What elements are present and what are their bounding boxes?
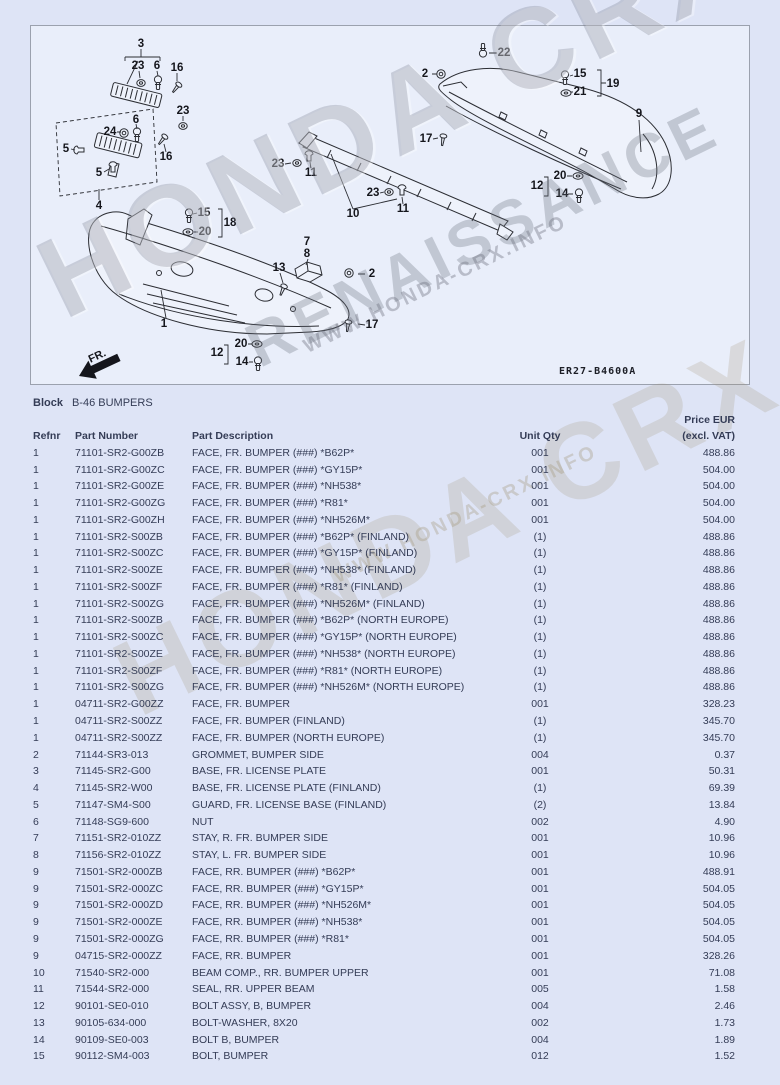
cell-part-description: FACE, FR. BUMPER (###) *NH538* (NORTH EU… [192,646,480,663]
diagram-callout-3: 3 [138,38,144,50]
cell-part-number: 71101-SR2-S00ZF [75,663,192,680]
diagram-callout-22: 22 [498,47,511,59]
cell-refnr: 1 [33,646,75,663]
cell-part-description: FACE, RR. BUMPER [192,948,480,965]
cell-price: 13.84 [600,797,735,814]
table-row: 5 71147-SM4-S00 GUARD, FR. LICENSE BASE … [0,797,780,814]
table-row: 1 04711-SR2-G00ZZ FACE, FR. BUMPER 001 3… [0,696,780,713]
cell-part-description: FACE, FR. BUMPER (###) *B62P* (FINLAND) [192,529,480,546]
cell-part-number: 71501-SR2-000ZC [75,881,192,898]
table-row: 12 90101-SE0-010 BOLT ASSY, B, BUMPER 00… [0,998,780,1015]
table-row: 10 71540-SR2-000 BEAM COMP., RR. BUMPER … [0,965,780,982]
cell-refnr: 1 [33,629,75,646]
diagram-callout-20: 20 [554,170,567,182]
cell-part-description: FACE, FR. BUMPER (###) *GY15P* (FINLAND) [192,545,480,562]
cell-unit-qty: (1) [480,545,600,562]
cell-part-number: 71101-SR2-S00ZE [75,646,192,663]
diagram-callout-19: 19 [607,78,620,90]
cell-unit-qty: 001 [480,763,600,780]
cell-unit-qty: 001 [480,462,600,479]
cell-part-description: STAY, R. FR. BUMPER SIDE [192,830,480,847]
cell-part-number: 71101-SR2-S00ZB [75,529,192,546]
cell-refnr: 1 [33,445,75,462]
diagram-callout-10: 10 [347,208,360,220]
cell-part-number: 71501-SR2-000ZB [75,864,192,881]
cell-price: 488.86 [600,445,735,462]
cell-unit-qty: 001 [480,931,600,948]
cell-part-description: BOLT, BUMPER [192,1048,480,1065]
table-row: 1 71101-SR2-S00ZG FACE, FR. BUMPER (###)… [0,679,780,696]
cell-price: 488.86 [600,629,735,646]
table-row: 9 71501-SR2-000ZE FACE, RR. BUMPER (###)… [0,914,780,931]
cell-part-description: NUT [192,814,480,831]
table-row: 11 71544-SR2-000 SEAL, RR. UPPER BEAM 00… [0,981,780,998]
diagram-callout-16: 16 [160,151,173,163]
diagram-callout-14: 14 [236,356,249,368]
diagram-callout-15: 15 [574,68,587,80]
diagram-callout-12: 12 [211,347,224,359]
cell-part-number: 71101-SR2-G00ZE [75,478,192,495]
table-row: 14 90109-SE0-003 BOLT B, BUMPER 004 1.89 [0,1032,780,1049]
cell-part-description: BASE, FR. LICENSE PLATE (FINLAND) [192,780,480,797]
cell-refnr: 1 [33,529,75,546]
cell-part-description: FACE, FR. BUMPER (###) *NH526M* [192,512,480,529]
table-row: 1 71101-SR2-S00ZG FACE, FR. BUMPER (###)… [0,596,780,613]
cell-price: 50.31 [600,763,735,780]
cell-price: 488.86 [600,545,735,562]
cell-price: 10.96 [600,847,735,864]
cell-price: 1.89 [600,1032,735,1049]
table-row: 1 71101-SR2-G00ZH FACE, FR. BUMPER (###)… [0,512,780,529]
cell-part-description: FACE, FR. BUMPER (###) *R81* (FINLAND) [192,579,480,596]
cell-part-description: FACE, RR. BUMPER (###) *R81* [192,931,480,948]
cell-unit-qty: (1) [480,529,600,546]
cell-part-description: FACE, FR. BUMPER (###) *B62P* (NORTH EUR… [192,612,480,629]
cell-part-number: 71147-SM4-S00 [75,797,192,814]
cell-price: 1.52 [600,1048,735,1065]
cell-part-number: 71101-SR2-G00ZH [75,512,192,529]
block-label: Block [33,397,63,409]
cell-refnr: 1 [33,462,75,479]
table-row: 1 71101-SR2-S00ZE FACE, FR. BUMPER (###)… [0,646,780,663]
header-unit-qty: Unit Qty [480,428,600,445]
cell-part-number: 71101-SR2-G00ZC [75,462,192,479]
header-excl-vat: (excl. VAT) [600,428,735,445]
header-part-description: Part Description [192,428,480,445]
cell-part-number: 71501-SR2-000ZE [75,914,192,931]
table-row: 6 71148-SG9-600 NUT 002 4.90 [0,814,780,831]
cell-part-description: BOLT-WASHER, 8X20 [192,1015,480,1032]
cell-price: 328.23 [600,696,735,713]
cell-unit-qty: 001 [480,830,600,847]
cell-unit-qty: (1) [480,730,600,747]
cell-refnr: 1 [33,562,75,579]
cell-refnr: 9 [33,914,75,931]
cell-price: 345.70 [600,730,735,747]
cell-unit-qty: 005 [480,981,600,998]
cell-price: 504.05 [600,881,735,898]
cell-unit-qty: 001 [480,512,600,529]
cell-unit-qty: 001 [480,897,600,914]
cell-part-description: BEAM COMP., RR. BUMPER UPPER [192,965,480,982]
cell-price: 328.26 [600,948,735,965]
cell-unit-qty: 002 [480,814,600,831]
diagram-callout-12: 12 [531,180,544,192]
table-row: 1 71101-SR2-S00ZB FACE, FR. BUMPER (###)… [0,612,780,629]
cell-part-number: 04715-SR2-000ZZ [75,948,192,965]
cell-part-number: 71501-SR2-000ZG [75,931,192,948]
table-row: 7 71151-SR2-010ZZ STAY, R. FR. BUMPER SI… [0,830,780,847]
diagram-callout-4: 4 [96,200,102,212]
table-row: 15 90112-SM4-003 BOLT, BUMPER 012 1.52 [0,1048,780,1065]
cell-price: 504.00 [600,462,735,479]
diagram-callout-15: 15 [198,207,211,219]
cell-refnr: 1 [33,679,75,696]
table-row: 1 04711-SR2-S00ZZ FACE, FR. BUMPER (NORT… [0,730,780,747]
cell-price: 488.91 [600,864,735,881]
cell-refnr: 1 [33,478,75,495]
diagram-callout-23: 23 [367,187,380,199]
table-row: 3 71145-SR2-G00 BASE, FR. LICENSE PLATE … [0,763,780,780]
parts-diagram: FR. ER27-B4600A 323616236241655422215211… [30,25,750,385]
cell-part-number: 71540-SR2-000 [75,965,192,982]
cell-part-description: FACE, RR. BUMPER (###) *B62P* [192,864,480,881]
cell-price: 10.96 [600,830,735,847]
diagram-callout-20: 20 [199,226,212,238]
diagram-callout-23: 23 [272,158,285,170]
table-row: 1 71101-SR2-G00ZG FACE, FR. BUMPER (###)… [0,495,780,512]
cell-part-number: 71144-SR3-013 [75,747,192,764]
cell-price: 504.05 [600,897,735,914]
header-price-eur: Price EUR [600,412,735,428]
diagram-callout-2: 2 [422,68,428,80]
table-row: 13 90105-634-000 BOLT-WASHER, 8X20 002 1… [0,1015,780,1032]
cell-unit-qty: 001 [480,881,600,898]
table-row: 1 71101-SR2-G00ZC FACE, FR. BUMPER (###)… [0,462,780,479]
cell-part-number: 71101-SR2-S00ZB [75,612,192,629]
cell-part-number: 71101-SR2-G00ZG [75,495,192,512]
table-row: 9 71501-SR2-000ZC FACE, RR. BUMPER (###)… [0,881,780,898]
table-row: 4 71145-SR2-W00 BASE, FR. LICENSE PLATE … [0,780,780,797]
cell-refnr: 1 [33,730,75,747]
cell-refnr: 9 [33,931,75,948]
cell-part-description: GROMMET, BUMPER SIDE [192,747,480,764]
cell-refnr: 1 [33,495,75,512]
diagram-callout-20: 20 [235,338,248,350]
diagram-callout-18: 18 [224,217,237,229]
cell-part-number: 71151-SR2-010ZZ [75,830,192,847]
diagram-callout-1: 1 [161,318,167,330]
cell-part-number: 04711-SR2-S00ZZ [75,730,192,747]
cell-unit-qty: 001 [480,864,600,881]
diagram-callout-11: 11 [305,167,317,179]
table-row: 1 71101-SR2-S00ZF FACE, FR. BUMPER (###)… [0,579,780,596]
cell-refnr: 7 [33,830,75,847]
cell-unit-qty: 004 [480,747,600,764]
diagram-callout-11: 11 [397,203,409,215]
diagram-callout-23: 23 [177,105,190,117]
parts-table: Price EUR Refnr Part Number Part Descrip… [0,412,780,1065]
table-row: 9 71501-SR2-000ZD FACE, RR. BUMPER (###)… [0,897,780,914]
cell-refnr: 11 [33,981,75,998]
cell-part-description: FACE, FR. BUMPER (###) *R81* (NORTH EURO… [192,663,480,680]
cell-unit-qty: 001 [480,965,600,982]
cell-part-number: 71101-SR2-S00ZF [75,579,192,596]
cell-part-description: FACE, FR. BUMPER (FINLAND) [192,713,480,730]
table-row: 1 71101-SR2-S00ZF FACE, FR. BUMPER (###)… [0,663,780,680]
cell-part-description: FACE, RR. BUMPER (###) *NH526M* [192,897,480,914]
cell-part-number: 90112-SM4-003 [75,1048,192,1065]
cell-price: 1.73 [600,1015,735,1032]
cell-refnr: 1 [33,579,75,596]
cell-unit-qty: 001 [480,445,600,462]
cell-unit-qty: 001 [480,914,600,931]
diagram-callout-23: 23 [132,60,145,72]
cell-unit-qty: (2) [480,797,600,814]
cell-refnr: 1 [33,545,75,562]
cell-part-description: FACE, FR. BUMPER (###) *NH538* [192,478,480,495]
cell-refnr: 9 [33,948,75,965]
block-value: B-46 BUMPERS [72,397,153,409]
cell-refnr: 2 [33,747,75,764]
cell-refnr: 1 [33,596,75,613]
cell-part-number: 71145-SR2-W00 [75,780,192,797]
cell-part-description: BOLT ASSY, B, BUMPER [192,998,480,1015]
cell-refnr: 10 [33,965,75,982]
table-row: 2 71144-SR3-013 GROMMET, BUMPER SIDE 004… [0,747,780,764]
table-row: 9 71501-SR2-000ZB FACE, RR. BUMPER (###)… [0,864,780,881]
table-row: 1 71101-SR2-S00ZC FACE, FR. BUMPER (###)… [0,545,780,562]
cell-part-description: FACE, FR. BUMPER (###) *NH538* (FINLAND) [192,562,480,579]
cell-price: 488.86 [600,579,735,596]
cell-unit-qty: 004 [480,998,600,1015]
cell-part-number: 71101-SR2-S00ZC [75,629,192,646]
cell-unit-qty: 012 [480,1048,600,1065]
cell-price: 69.39 [600,780,735,797]
cell-refnr: 9 [33,881,75,898]
cell-refnr: 12 [33,998,75,1015]
diagram-callout-2: 2 [369,268,375,280]
header-part-number: Part Number [75,428,192,445]
block-title: BlockB-46 BUMPERS [33,397,153,409]
cell-part-number: 71101-SR2-S00ZE [75,562,192,579]
cell-part-description: FACE, FR. BUMPER (###) *B62P* [192,445,480,462]
diagram-callout-17: 17 [420,133,433,145]
cell-unit-qty: 001 [480,948,600,965]
cell-refnr: 14 [33,1032,75,1049]
cell-part-number: 71101-SR2-S00ZG [75,596,192,613]
cell-part-description: FACE, FR. BUMPER (###) *NH526M* (FINLAND… [192,596,480,613]
table-row: 1 71101-SR2-S00ZB FACE, FR. BUMPER (###)… [0,529,780,546]
cell-price: 504.00 [600,495,735,512]
cell-part-number: 90105-634-000 [75,1015,192,1032]
cell-unit-qty: (1) [480,579,600,596]
cell-refnr: 15 [33,1048,75,1065]
table-row: 9 71501-SR2-000ZG FACE, RR. BUMPER (###)… [0,931,780,948]
table-row: 1 71101-SR2-G00ZE FACE, FR. BUMPER (###)… [0,478,780,495]
diagram-callout-6: 6 [133,114,139,126]
cell-unit-qty: (1) [480,646,600,663]
diagram-callout-9: 9 [636,108,642,120]
diagram-callout-5: 5 [96,167,102,179]
cell-unit-qty: (1) [480,612,600,629]
table-header-row: Refnr Part Number Part Description Unit … [0,428,780,445]
cell-part-description: SEAL, RR. UPPER BEAM [192,981,480,998]
cell-part-description: FACE, FR. BUMPER (###) *GY15P* (NORTH EU… [192,629,480,646]
cell-price: 345.70 [600,713,735,730]
cell-refnr: 1 [33,696,75,713]
table-row: 8 71156-SR2-010ZZ STAY, L. FR. BUMPER SI… [0,847,780,864]
cell-price: 488.86 [600,663,735,680]
cell-part-number: 71544-SR2-000 [75,981,192,998]
cell-price: 4.90 [600,814,735,831]
cell-price: 488.86 [600,596,735,613]
cell-part-description: FACE, RR. BUMPER (###) *GY15P* [192,881,480,898]
cell-price: 504.05 [600,931,735,948]
cell-price: 488.86 [600,679,735,696]
cell-unit-qty: 001 [480,478,600,495]
cell-part-description: FACE, FR. BUMPER (NORTH EUROPE) [192,730,480,747]
cell-unit-qty: (1) [480,629,600,646]
diagram-callouts: 3236162362416554222152119917201214231123… [31,26,751,386]
table-row: 9 04715-SR2-000ZZ FACE, RR. BUMPER 001 3… [0,948,780,965]
cell-unit-qty: 001 [480,495,600,512]
cell-part-number: 71145-SR2-G00 [75,763,192,780]
cell-price: 488.86 [600,529,735,546]
cell-part-number: 71101-SR2-S00ZG [75,679,192,696]
diagram-callout-6: 6 [154,60,160,72]
cell-unit-qty: 002 [480,1015,600,1032]
diagram-callout-16: 16 [171,62,184,74]
cell-price: 488.86 [600,562,735,579]
cell-price: 504.00 [600,512,735,529]
cell-part-number: 71101-SR2-S00ZC [75,545,192,562]
diagram-callout-5: 5 [63,143,69,155]
cell-part-description: FACE, FR. BUMPER [192,696,480,713]
cell-unit-qty: (1) [480,713,600,730]
cell-refnr: 1 [33,512,75,529]
cell-refnr: 8 [33,847,75,864]
cell-part-description: FACE, RR. BUMPER (###) *NH538* [192,914,480,931]
cell-price: 2.46 [600,998,735,1015]
cell-price: 488.86 [600,646,735,663]
cell-refnr: 1 [33,713,75,730]
cell-part-number: 90109-SE0-003 [75,1032,192,1049]
cell-unit-qty: 001 [480,847,600,864]
cell-part-number: 71501-SR2-000ZD [75,897,192,914]
cell-unit-qty: 004 [480,1032,600,1049]
diagram-callout-7: 7 [304,236,310,248]
cell-price: 488.86 [600,612,735,629]
cell-unit-qty: (1) [480,562,600,579]
cell-part-description: GUARD, FR. LICENSE BASE (FINLAND) [192,797,480,814]
cell-refnr: 9 [33,897,75,914]
cell-refnr: 6 [33,814,75,831]
header-refnr: Refnr [33,428,75,445]
cell-unit-qty: (1) [480,596,600,613]
cell-refnr: 13 [33,1015,75,1032]
table-header-price-line1: Price EUR [0,412,780,428]
diagram-callout-17: 17 [366,319,379,331]
cell-unit-qty: (1) [480,679,600,696]
diagram-callout-14: 14 [556,188,569,200]
cell-part-number: 71156-SR2-010ZZ [75,847,192,864]
diagram-callout-24: 24 [104,126,117,138]
cell-price: 504.05 [600,914,735,931]
cell-price: 504.00 [600,478,735,495]
cell-part-number: 71148-SG9-600 [75,814,192,831]
cell-part-description: STAY, L. FR. BUMPER SIDE [192,847,480,864]
table-body: 1 71101-SR2-G00ZB FACE, FR. BUMPER (###)… [0,445,780,1065]
diagram-callout-13: 13 [273,262,286,274]
cell-refnr: 5 [33,797,75,814]
cell-refnr: 3 [33,763,75,780]
cell-unit-qty: (1) [480,780,600,797]
cell-price: 0.37 [600,747,735,764]
table-row: 1 71101-SR2-S00ZE FACE, FR. BUMPER (###)… [0,562,780,579]
cell-part-description: FACE, FR. BUMPER (###) *R81* [192,495,480,512]
cell-part-description: FACE, FR. BUMPER (###) *GY15P* [192,462,480,479]
table-row: 1 71101-SR2-G00ZB FACE, FR. BUMPER (###)… [0,445,780,462]
cell-refnr: 4 [33,780,75,797]
table-row: 1 04711-SR2-S00ZZ FACE, FR. BUMPER (FINL… [0,713,780,730]
cell-unit-qty: (1) [480,663,600,680]
cell-unit-qty: 001 [480,696,600,713]
cell-refnr: 1 [33,612,75,629]
cell-price: 1.58 [600,981,735,998]
cell-part-description: BOLT B, BUMPER [192,1032,480,1049]
cell-part-description: BASE, FR. LICENSE PLATE [192,763,480,780]
cell-part-number: 04711-SR2-S00ZZ [75,713,192,730]
cell-part-number: 90101-SE0-010 [75,998,192,1015]
diagram-callout-21: 21 [574,86,587,98]
cell-price: 71.08 [600,965,735,982]
table-row: 1 71101-SR2-S00ZC FACE, FR. BUMPER (###)… [0,629,780,646]
cell-part-description: FACE, FR. BUMPER (###) *NH526M* (NORTH E… [192,679,480,696]
diagram-callout-8: 8 [304,248,310,260]
cell-refnr: 9 [33,864,75,881]
cell-refnr: 1 [33,663,75,680]
cell-part-number: 71101-SR2-G00ZB [75,445,192,462]
cell-part-number: 04711-SR2-G00ZZ [75,696,192,713]
